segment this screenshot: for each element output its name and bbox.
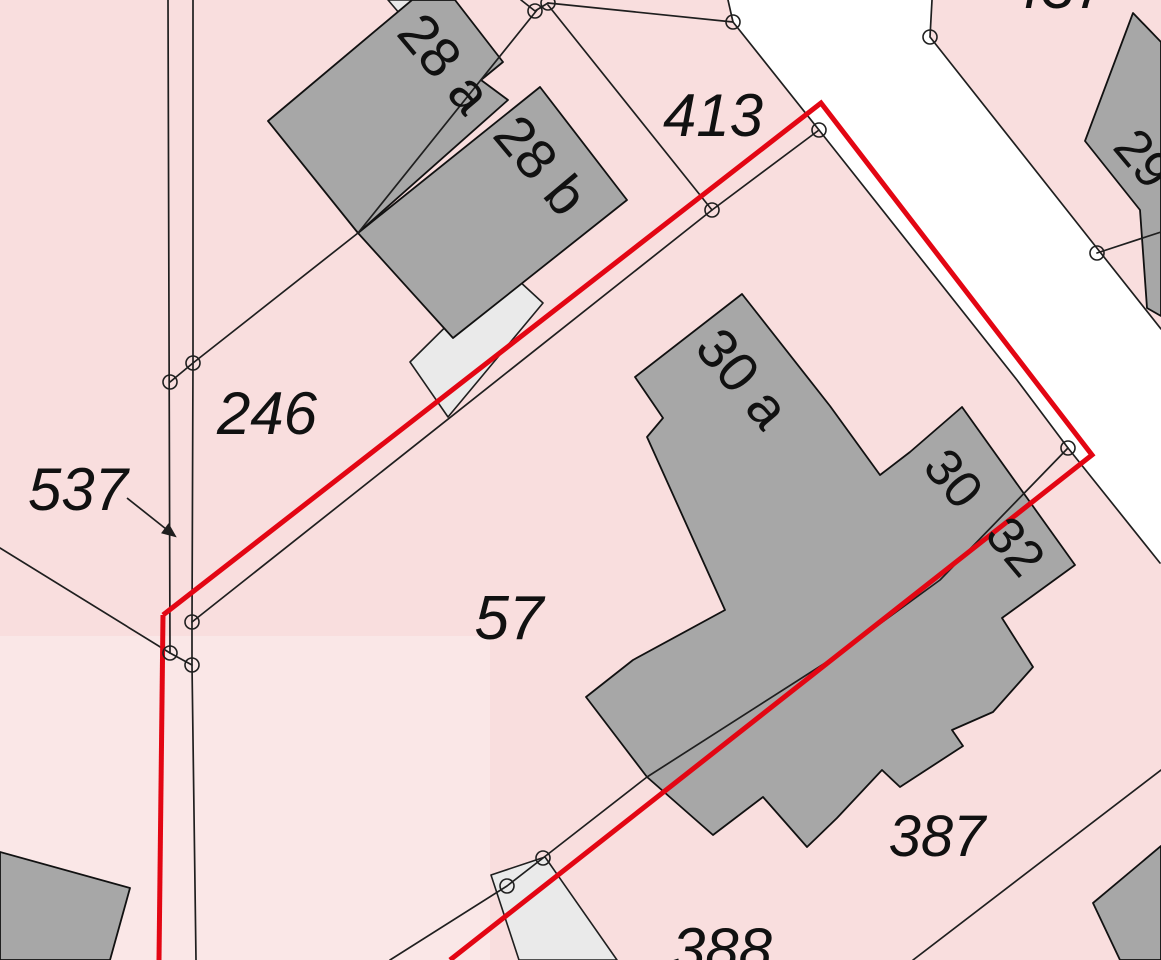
parcel-label-537: 537 — [28, 456, 131, 523]
parcel-label-57: 57 — [475, 584, 546, 653]
map-canvas: 537 246 413 57 387 388 437 28 a 28 b 30 … — [0, 0, 1161, 960]
parcel-label-246: 246 — [216, 380, 318, 447]
parcel-label-413: 413 — [663, 82, 763, 149]
parcel-label-387: 387 — [889, 804, 989, 869]
parcel-label-437-partial: 437 — [1008, 0, 1111, 21]
parcel-label-388: 388 — [672, 916, 773, 960]
cadastral-map[interactable]: 537 246 413 57 387 388 437 28 a 28 b 30 … — [0, 0, 1161, 960]
